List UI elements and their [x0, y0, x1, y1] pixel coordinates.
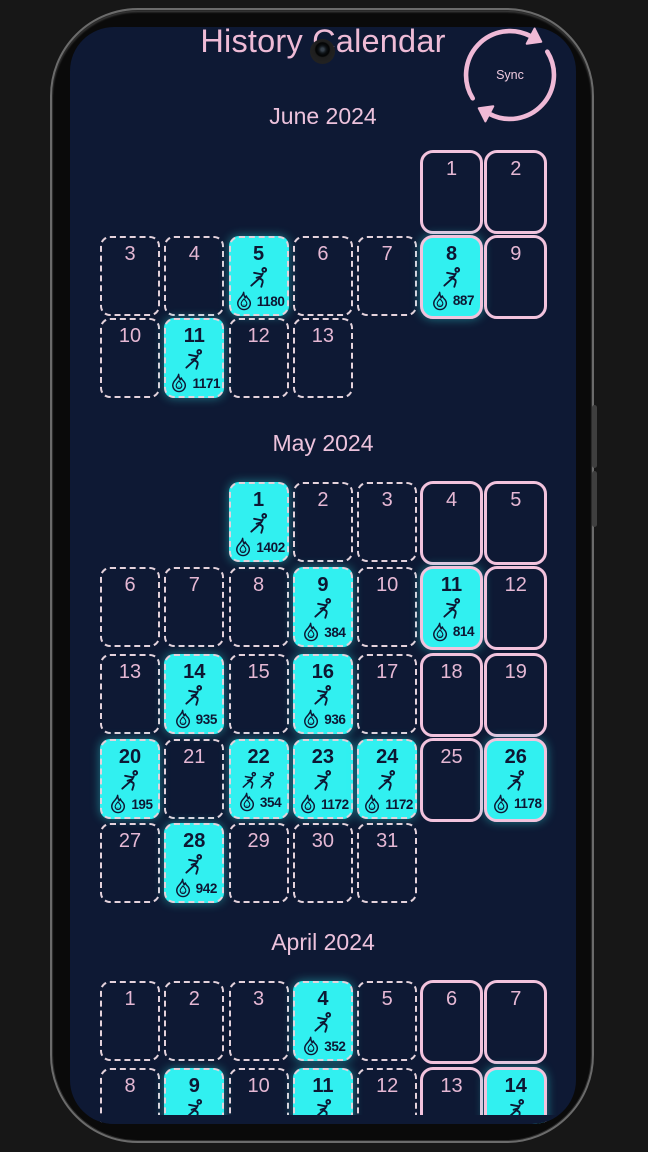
svg-text:kcal: kcal — [309, 721, 314, 725]
svg-text:kcal: kcal — [241, 549, 246, 553]
svg-text:kcal: kcal — [370, 806, 375, 810]
svg-text:kcal: kcal — [309, 634, 314, 638]
svg-text:kcal: kcal — [437, 633, 442, 637]
svg-text:kcal: kcal — [116, 806, 121, 810]
svg-text:kcal: kcal — [177, 385, 182, 389]
svg-text:kcal: kcal — [306, 806, 311, 810]
svg-text:kcal: kcal — [309, 1048, 314, 1052]
svg-text:kcal: kcal — [244, 804, 249, 808]
svg-text:kcal: kcal — [180, 721, 185, 725]
svg-text:kcal: kcal — [180, 890, 185, 894]
svg-text:kcal: kcal — [241, 303, 246, 307]
svg-text:kcal: kcal — [437, 302, 442, 306]
svg-text:kcal: kcal — [499, 805, 504, 809]
